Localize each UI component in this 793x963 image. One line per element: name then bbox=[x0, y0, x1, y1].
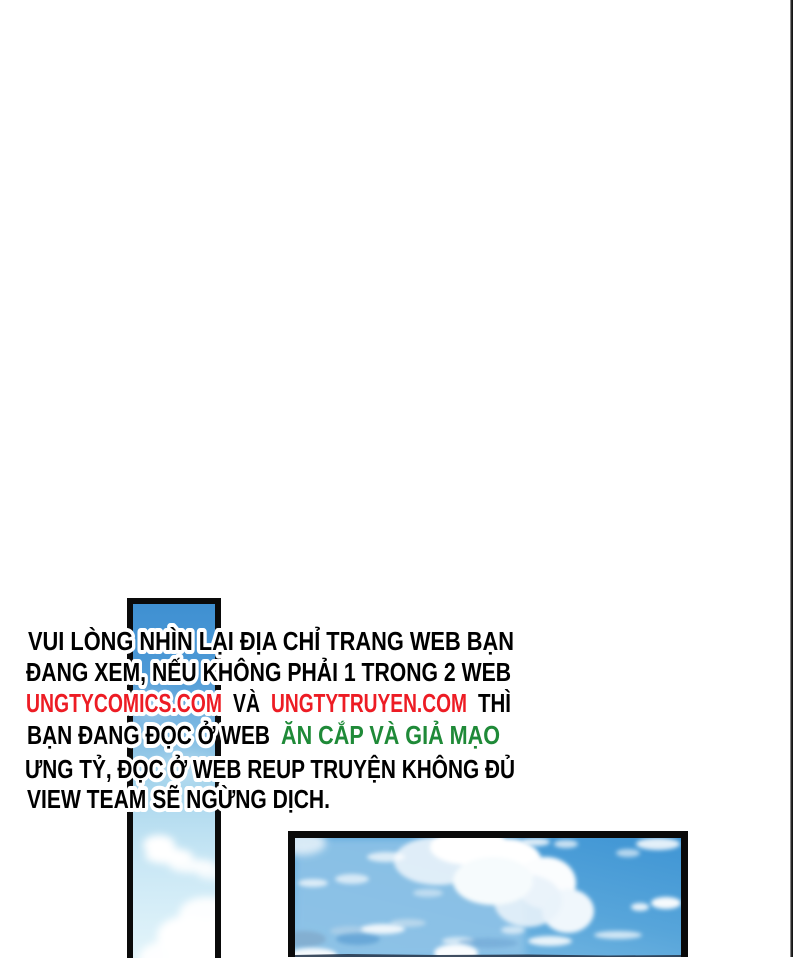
svg-text:VUI LÒNG NHÌN LẠI ĐỊA CHỈ TRAN: VUI LÒNG NHÌN LẠI ĐỊA CHỈ TRANG WEB BẠN bbox=[28, 626, 514, 656]
svg-text:UNGTYTRUYEN.COM: UNGTYTRUYEN.COM bbox=[271, 688, 467, 718]
svg-text:ƯNG TỶ, ĐỌC Ở WEB REUP TRUYỆN: ƯNG TỶ, ĐỌC Ở WEB REUP TRUYỆN KHÔNG ĐỦ bbox=[25, 753, 515, 784]
svg-text:ĂN CẮP VÀ GIẢ MẠO: ĂN CẮP VÀ GIẢ MẠO bbox=[281, 720, 500, 750]
svg-text:BẠN ĐANG ĐỌC Ở WEB: BẠN ĐANG ĐỌC Ở WEB bbox=[27, 719, 270, 750]
svg-text:UNGTYCOMICS.COM: UNGTYCOMICS.COM bbox=[26, 688, 222, 718]
svg-text:ĐANG XEM, NẾU KHÔNG PHẢI 1 TRO: ĐANG XEM, NẾU KHÔNG PHẢI 1 TRONG 2 WEB bbox=[26, 657, 511, 687]
svg-text:VIEW TEAM SẼ NGỪNG DỊCH.: VIEW TEAM SẼ NGỪNG DỊCH. bbox=[27, 784, 330, 814]
svg-text:VÀ: VÀ bbox=[233, 688, 260, 718]
svg-text:THÌ: THÌ bbox=[478, 688, 511, 718]
